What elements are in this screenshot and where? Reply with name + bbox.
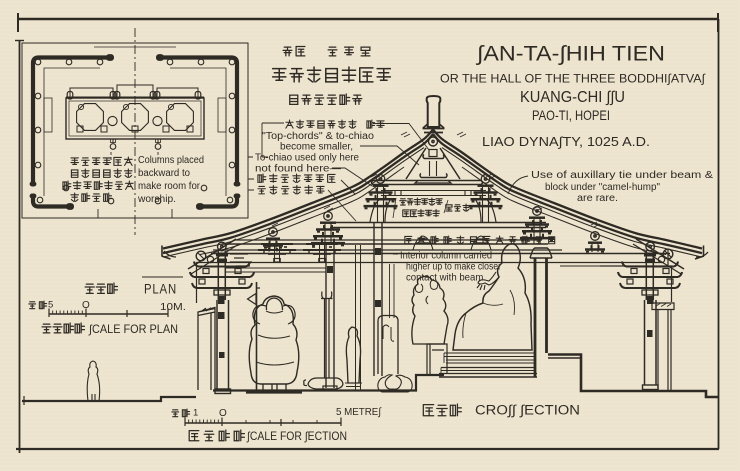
svg-text:OR THE HALL OF THE THREE BODD: OR THE HALL OF THE THREE BODDHI∫ATVA∫ — [440, 71, 706, 85]
svg-text:are rare.: are rare. — [577, 193, 618, 204]
svg-text:∫CALE FOR ∫ECTION: ∫CALE FOR ∫ECTION — [246, 431, 347, 443]
svg-text:not found here—: not found here— — [255, 163, 341, 174]
svg-text:contact with beam.: contact with beam. — [406, 272, 486, 283]
svg-text:10M.: 10M. — [160, 302, 186, 313]
svg-text:"Top-chords" & to-chiao: "Top-chords" & to-chiao — [262, 131, 374, 142]
svg-text:∫CALE FOR PLAN: ∫CALE FOR PLAN — [88, 324, 178, 336]
svg-text:higher up to make closer: higher up to make closer — [406, 261, 502, 272]
svg-text:Use of auxillary tie under bea: Use of auxillary tie under beam & — [531, 170, 713, 181]
svg-text:Columns placed: Columns placed — [138, 155, 204, 166]
svg-text:LIAO DYNA∫TY, 1025 A.D.: LIAO DYNA∫TY, 1025 A.D. — [482, 134, 650, 149]
svg-text:1: 1 — [193, 407, 198, 418]
svg-text:block under "camel-hump": block under "camel-hump" — [545, 182, 660, 193]
svg-text:5 METRE∫: 5 METRE∫ — [336, 406, 382, 418]
svg-text:CRO∫∫ ∫ECTION: CRO∫∫ ∫ECTION — [475, 403, 580, 418]
svg-text:PLAN: PLAN — [144, 282, 177, 297]
svg-text:make room for: make room for — [138, 181, 201, 192]
svg-text:Interior column carried: Interior column carried — [400, 250, 492, 261]
svg-text:O: O — [219, 408, 227, 419]
svg-text:KUANG-CHI ∫∫U: KUANG-CHI ∫∫U — [520, 89, 625, 106]
svg-text:PAO-TI, HOPEI: PAO-TI, HOPEI — [532, 107, 610, 123]
svg-text:become smaller,: become smaller, — [280, 141, 353, 152]
svg-text:To-chiao used only here: To-chiao used only here — [255, 152, 359, 163]
svg-text:∫AN-TA-∫HIH TIEN: ∫AN-TA-∫HIH TIEN — [476, 42, 665, 65]
svg-text:backward to: backward to — [138, 168, 190, 179]
svg-text:worship.: worship. — [137, 194, 176, 205]
